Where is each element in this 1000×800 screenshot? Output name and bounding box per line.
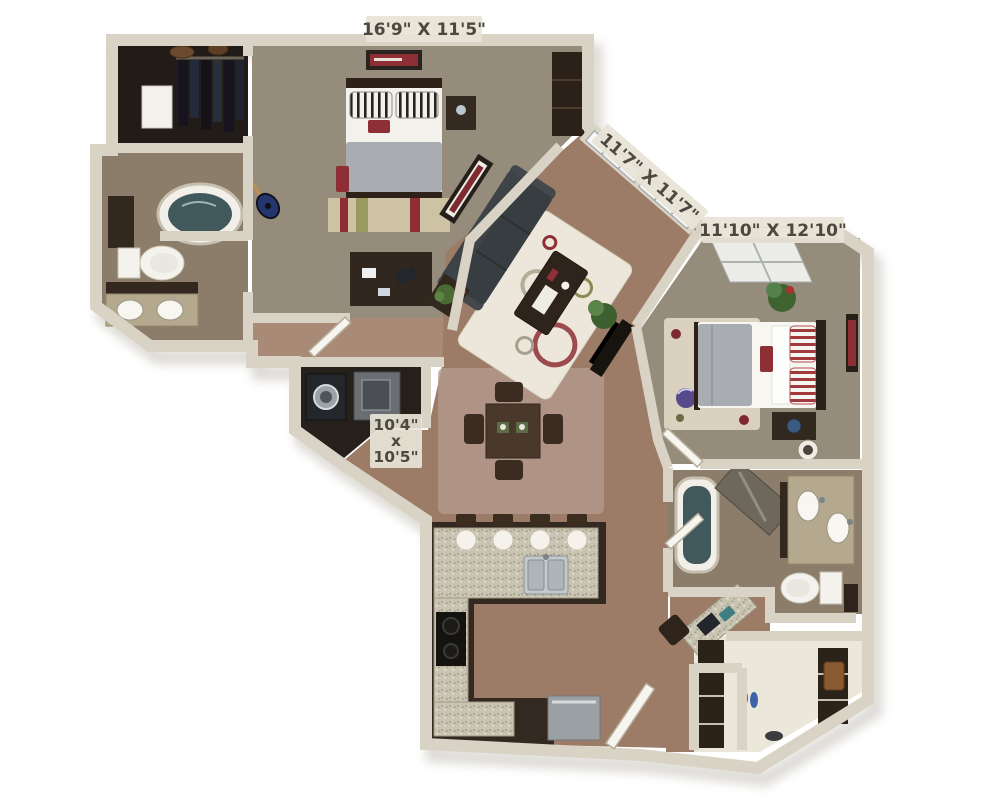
bedroom1-dimension-text: 16'9" X 11'5" xyxy=(362,20,486,40)
bed1-bench xyxy=(336,166,349,192)
bed1-foot-rail xyxy=(346,192,442,198)
stool-back xyxy=(530,514,550,526)
dining-chair-left xyxy=(464,414,484,444)
bed1-accent-pillow xyxy=(368,120,390,133)
tall-cabinet xyxy=(108,196,134,248)
bed2-striped-pillow xyxy=(790,368,816,404)
bar-stool xyxy=(493,530,513,550)
closet-shelf xyxy=(142,86,172,128)
sink xyxy=(157,300,183,320)
shelving-left xyxy=(698,640,724,748)
dining-chair-top xyxy=(495,382,523,402)
floorplan-page: 16'9" X 11'5" 11'7" X 11'7" 11'10" X 12'… xyxy=(0,0,1000,800)
stool-back xyxy=(493,514,513,526)
bath-water xyxy=(168,193,232,235)
burner xyxy=(444,644,458,658)
lamp xyxy=(456,105,466,115)
woven-bag xyxy=(824,662,844,690)
lamp xyxy=(787,419,801,433)
decor-ball xyxy=(676,388,696,408)
desk xyxy=(350,252,432,306)
utility-dimension-line3: 10'5" xyxy=(373,448,418,466)
bed2-headboard xyxy=(816,320,826,410)
hat xyxy=(170,46,194,58)
bar-stool xyxy=(456,530,476,550)
toilet-tank xyxy=(820,572,842,604)
bed2-blanket xyxy=(698,324,752,406)
bed2-accent-pillow xyxy=(760,346,773,372)
burner xyxy=(443,618,459,634)
hanging-clothes xyxy=(178,60,188,126)
stool-back xyxy=(567,514,587,526)
dresser xyxy=(552,52,584,136)
dining-table xyxy=(486,404,540,458)
bed1-blanket xyxy=(346,142,442,192)
label-bedroom2-dimensions: 11'10" X 12'10" xyxy=(699,217,847,243)
label-utility-dimensions: 10'4" x 10'5" xyxy=(370,414,422,468)
shoe xyxy=(765,731,783,741)
bar-stool xyxy=(530,530,550,550)
bed1-pillow-right xyxy=(396,92,438,118)
faucet xyxy=(819,497,825,503)
bed2-pillow-white xyxy=(772,326,790,404)
bed1-pillow-left xyxy=(350,92,392,118)
label-bedroom1-dimensions: 16'9" X 11'5" xyxy=(362,16,486,42)
toilet-tank xyxy=(118,248,140,278)
stool-back xyxy=(456,514,476,526)
dining-chair-right xyxy=(543,414,563,444)
sink xyxy=(827,513,849,543)
faucet xyxy=(847,519,853,525)
apartment-3d-floorplan: 16'9" X 11'5" 11'7" X 11'7" 11'10" X 12'… xyxy=(0,0,1000,800)
counter-bottom xyxy=(434,702,514,736)
bed2-striped-pillow xyxy=(790,326,816,362)
sink xyxy=(797,491,819,521)
dining-chair-bottom xyxy=(495,460,523,480)
bar-stool xyxy=(567,530,587,550)
faucet xyxy=(543,554,549,560)
bedroom2-dimension-text: 11'10" X 12'10" xyxy=(699,221,847,241)
desk-papers xyxy=(362,268,376,278)
side-cabinet xyxy=(844,584,858,612)
slipper xyxy=(750,692,758,708)
